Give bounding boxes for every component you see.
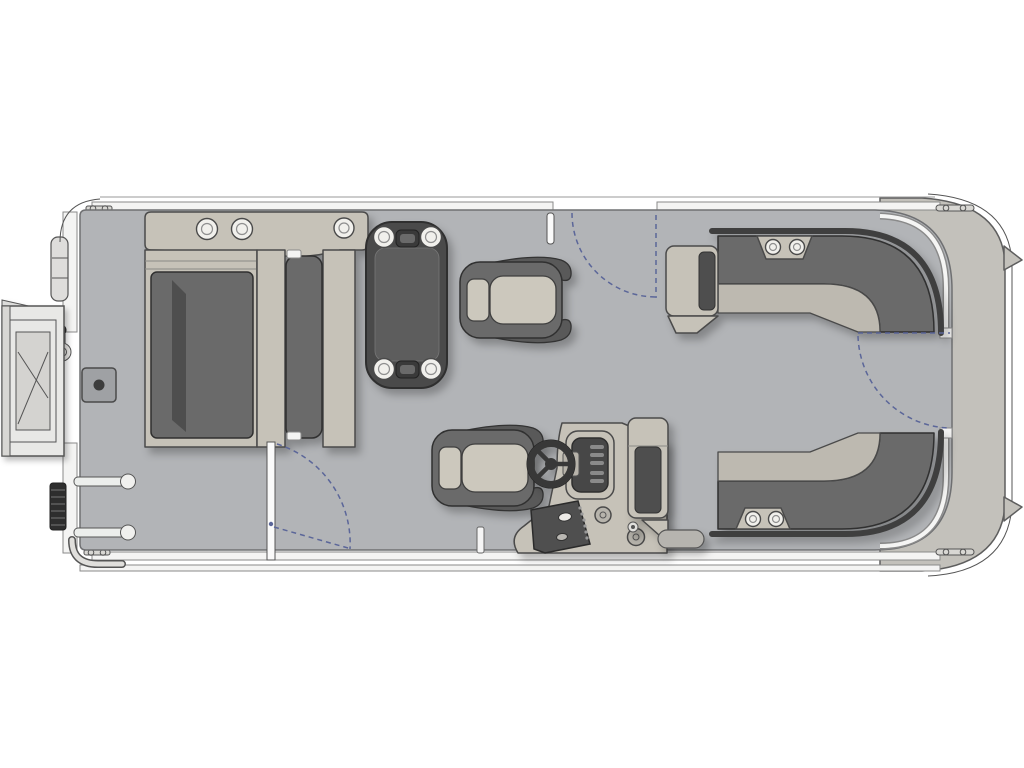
top-rail-left-segment [92,202,553,210]
chaise-cushion-bolster [172,280,186,432]
walkthrough-seat-cushion [286,256,322,438]
cleat-top-right [936,205,974,211]
deck-seam-post [477,527,484,553]
bench-bottom-armrest-pad [635,447,661,513]
table-cupholder [421,359,442,380]
lounger-cupholder [197,219,218,240]
walkthrough-seat-left-rail [257,250,285,447]
port-boarding-gate-open [2,300,64,456]
chaise-cushion [151,272,253,438]
bench-cupholder [746,512,761,527]
table-cupholder [374,227,395,248]
dinette-table [366,222,447,388]
table-cupholder [374,359,395,380]
side-gate-door [267,442,275,560]
captain-chair [460,257,571,342]
ladder-rail-top [74,477,128,486]
transom-pod [658,530,704,548]
bench-cupholder [769,512,784,527]
top-gate-post [547,213,554,244]
lounger-cupholder [334,218,354,238]
helm-chair [432,425,543,510]
bow-fin-bottom [1004,497,1022,521]
console-gauge [595,507,611,523]
bench-top-armrest-pad [699,252,715,310]
lounger-cupholder [232,219,253,240]
gate-spine [2,306,10,456]
ladder-rail-cap [121,525,136,540]
deck-latch-dot [631,525,635,529]
table-slot-inner [400,365,415,374]
walkthrough-seat-right-rail [323,250,355,447]
top-rail-right-segment [657,202,940,210]
floorplan-page [0,0,1024,768]
bow-lounger [145,212,368,447]
hatch-latch-icon [94,380,105,391]
table-cupholder [421,227,442,248]
port-bumper-pod [51,237,68,301]
table-slot-inner [400,234,415,243]
table-surface [375,248,439,361]
cleat-bottom-right [936,549,974,555]
side-gate [267,442,275,560]
bottom-outer-rail [80,565,940,571]
bow-fin-top [1004,246,1022,270]
bottom-rail [92,552,940,560]
seat-hinge [287,432,301,440]
bench-cupholder [766,240,781,255]
ladder-rail-cap [121,474,136,489]
pontoon-floorplan-drawing [0,0,1024,768]
seat-hinge [287,250,301,258]
ladder-rail-bottom [74,528,128,537]
bench-cupholder [790,240,805,255]
side-gate-hinge-dot [269,522,273,526]
